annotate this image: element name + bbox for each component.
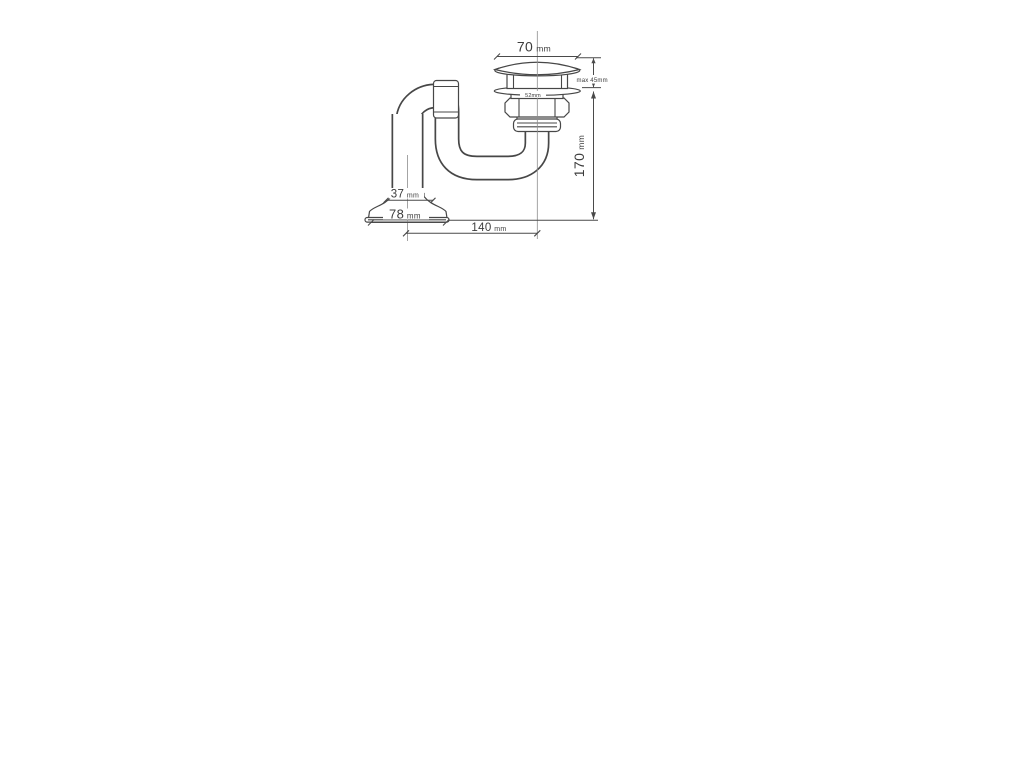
cap-width-label: 70mm (517, 39, 551, 55)
dimension-cap-height: max 45mm (575, 58, 615, 88)
flange-label: 52mm (525, 93, 541, 99)
overall-height-label: 170mm (571, 135, 587, 178)
siphon-technical-drawing: 70mm max 45mm 52mm 170mm (0, 0, 1024, 768)
cap-height-label: max 45mm (577, 78, 608, 84)
dimension-horizontal-reach: 140mm (403, 222, 540, 237)
compression-nut (434, 81, 459, 119)
dimension-pipe-width: 37mm (384, 188, 436, 203)
page-canvas: 70mm max 45mm 52mm 170mm (0, 0, 1024, 768)
